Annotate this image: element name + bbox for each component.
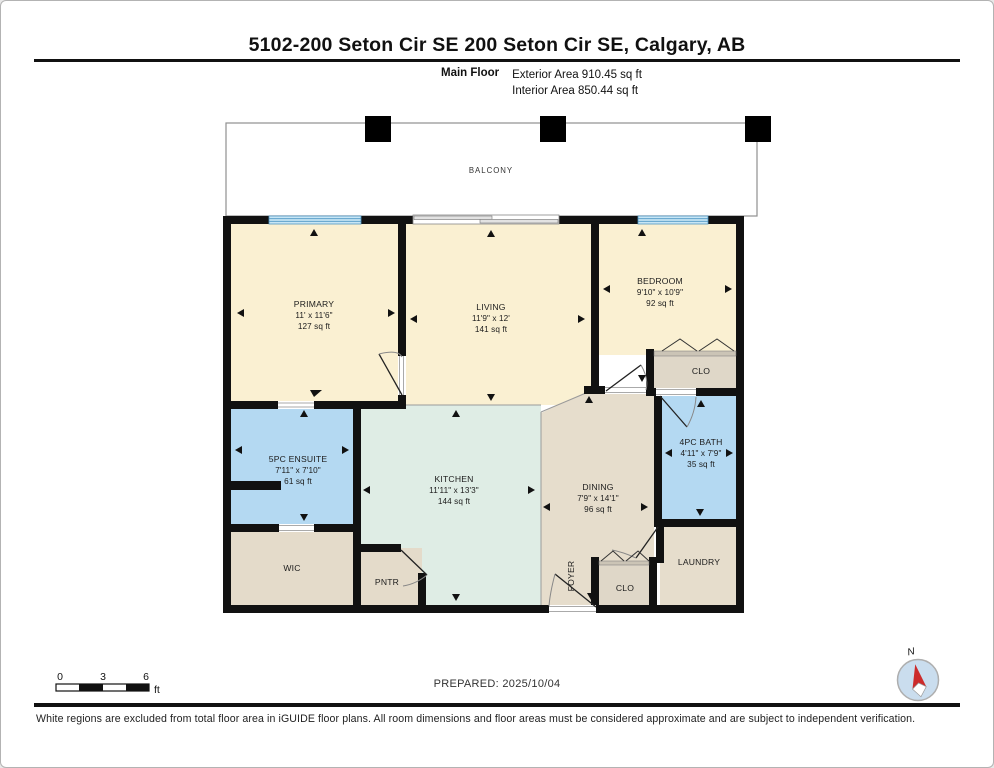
- svg-text:92 sq ft: 92 sq ft: [646, 299, 674, 308]
- label-living: LIVING 11'9" x 12' 141 sq ft: [472, 302, 510, 334]
- svg-text:PRIMARY: PRIMARY: [294, 299, 334, 309]
- balcony: BALCONY: [226, 116, 771, 216]
- balcony-label: BALCONY: [469, 166, 513, 175]
- svg-text:LIVING: LIVING: [476, 302, 505, 312]
- svg-text:4PC BATH: 4PC BATH: [680, 437, 723, 447]
- label-closet-bedroom: CLO: [692, 366, 710, 376]
- svg-text:4'11" x 7'9": 4'11" x 7'9": [681, 449, 722, 458]
- room-living-area: [402, 220, 595, 405]
- prepared-date: PREPARED: 2025/10/04: [1, 678, 993, 690]
- balcony-sliding-door: [413, 215, 559, 224]
- svg-text:KITCHEN: KITCHEN: [434, 474, 473, 484]
- svg-text:9'10" x 10'9": 9'10" x 10'9": [637, 288, 683, 297]
- svg-text:11' x 11'6": 11' x 11'6": [295, 311, 332, 320]
- balcony-pillar: [745, 116, 771, 142]
- label-pantry: PNTR: [375, 577, 399, 587]
- svg-text:11'11" x 13'3": 11'11" x 13'3": [429, 486, 479, 495]
- label-primary: PRIMARY 11' x 11'6" 127 sq ft: [294, 299, 334, 331]
- bedroom-window: [638, 216, 708, 224]
- compass: N: [898, 646, 939, 700]
- floor-plan-drawing: BALCONY: [1, 1, 994, 768]
- svg-text:141 sq ft: 141 sq ft: [475, 325, 508, 334]
- balcony-pillar: [365, 116, 391, 142]
- svg-text:127 sq ft: 127 sq ft: [298, 322, 331, 331]
- windows: [269, 215, 708, 224]
- disclaimer-text: White regions are excluded from total fl…: [36, 713, 963, 725]
- label-wic: WIC: [283, 563, 300, 573]
- svg-text:11'9" x 12': 11'9" x 12': [472, 314, 510, 323]
- primary-window: [269, 216, 361, 224]
- svg-text:35 sq ft: 35 sq ft: [687, 460, 715, 469]
- svg-text:DINING: DINING: [582, 482, 613, 492]
- footer-divider: [34, 703, 960, 707]
- compass-north-label: N: [906, 646, 916, 658]
- svg-text:BEDROOM: BEDROOM: [637, 276, 683, 286]
- svg-text:5PC ENSUITE: 5PC ENSUITE: [269, 454, 328, 464]
- svg-text:96 sq ft: 96 sq ft: [584, 505, 612, 514]
- balcony-pillar: [540, 116, 566, 142]
- svg-text:7'11" x 7'10": 7'11" x 7'10": [275, 466, 321, 475]
- label-laundry: LAUNDRY: [678, 557, 720, 567]
- svg-text:144 sq ft: 144 sq ft: [438, 497, 471, 506]
- svg-text:61 sq ft: 61 sq ft: [284, 477, 312, 486]
- label-closet-foyer: CLO: [616, 583, 634, 593]
- floor-plan-page: 5102-200 Seton Cir SE 200 Seton Cir SE, …: [0, 0, 994, 768]
- label-foyer: FOYER: [566, 561, 576, 592]
- svg-text:7'9" x 14'1": 7'9" x 14'1": [577, 494, 619, 503]
